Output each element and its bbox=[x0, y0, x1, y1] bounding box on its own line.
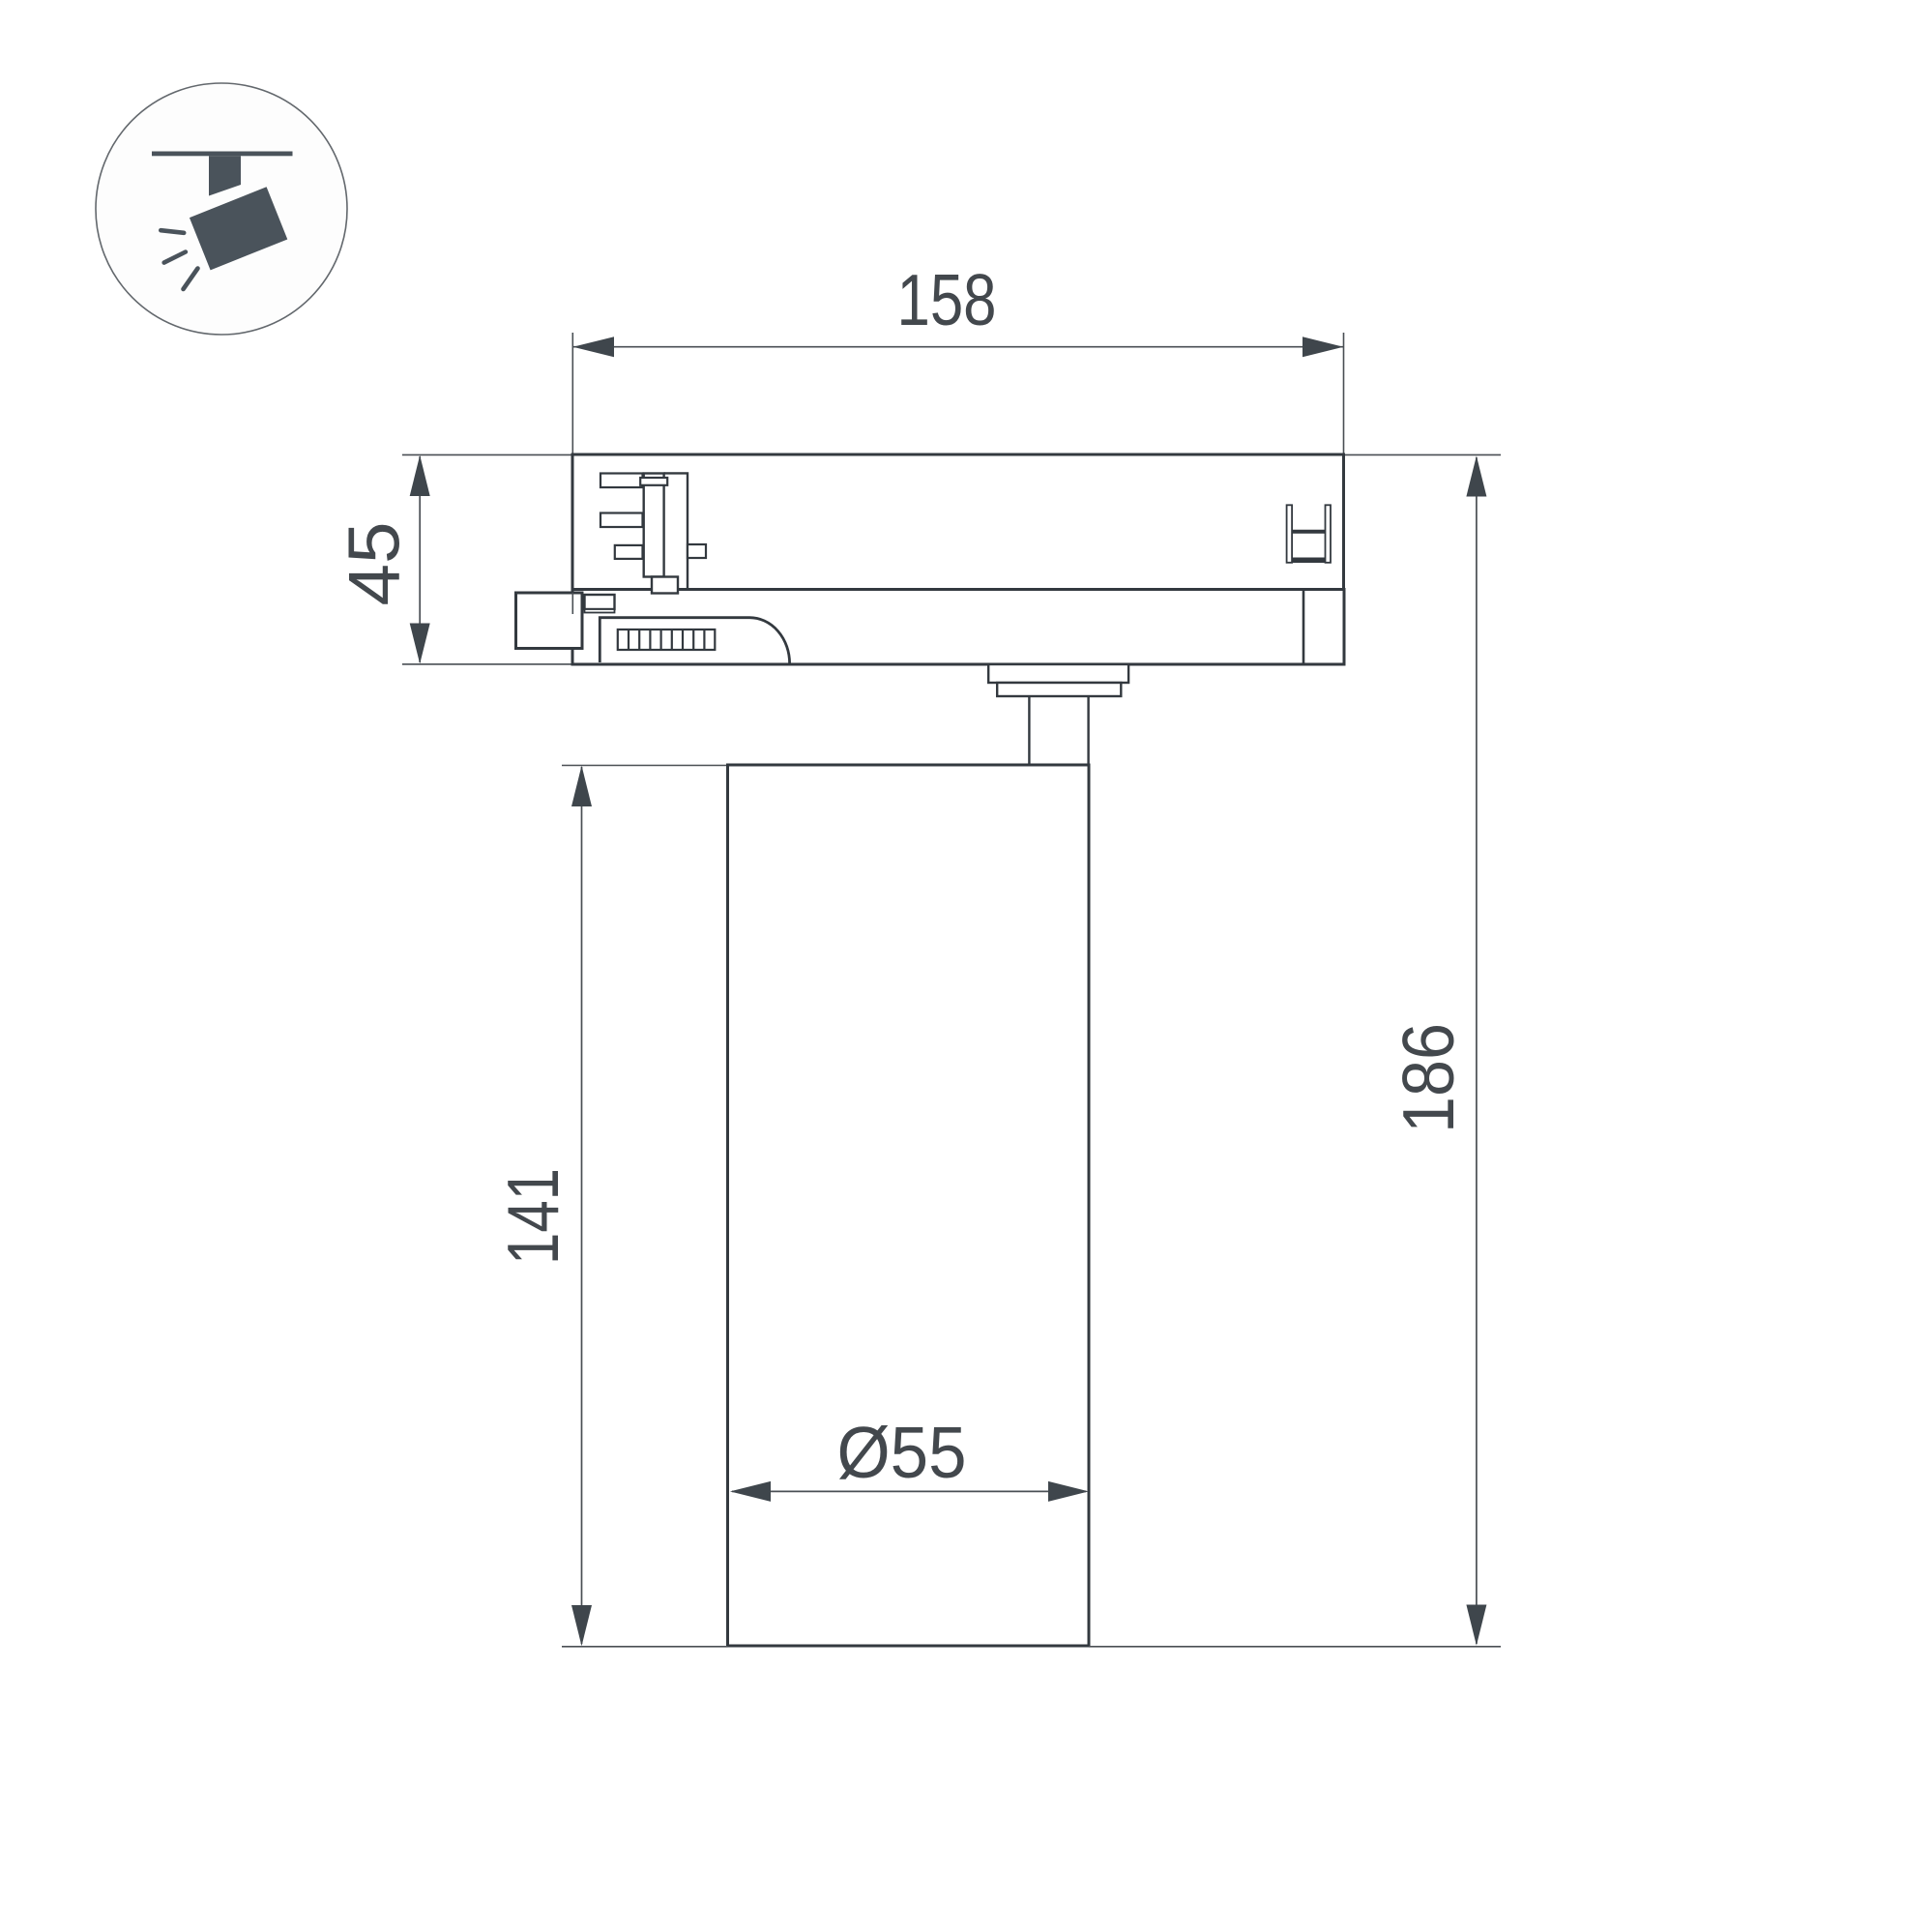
svg-text:141: 141 bbox=[492, 1168, 573, 1265]
svg-text:45: 45 bbox=[334, 522, 415, 606]
svg-text:Ø55: Ø55 bbox=[837, 1412, 967, 1493]
svg-text:186: 186 bbox=[1388, 1023, 1469, 1133]
svg-text:158: 158 bbox=[897, 259, 997, 340]
